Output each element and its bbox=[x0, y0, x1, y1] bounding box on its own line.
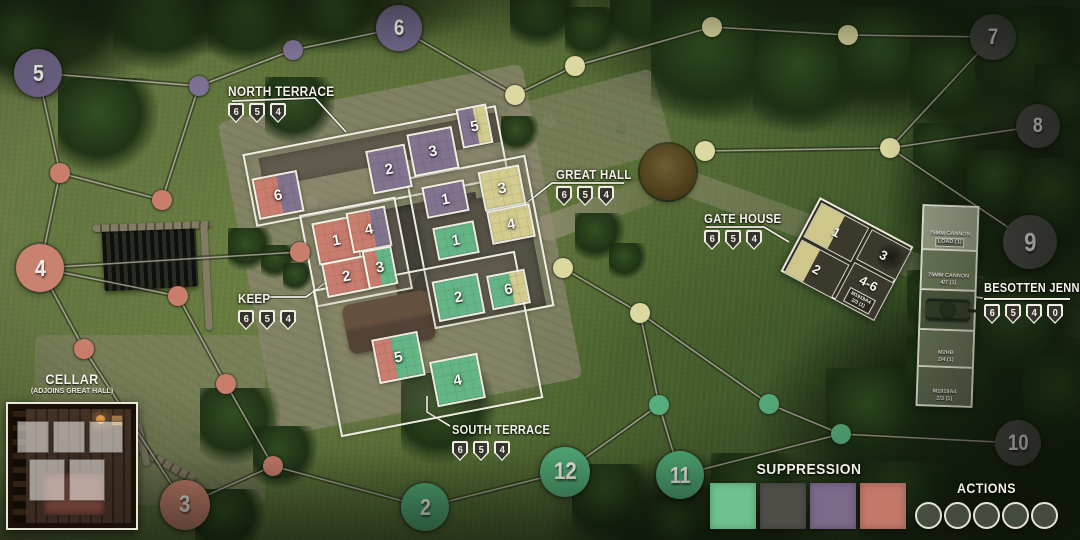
defense-badge: 5 bbox=[1005, 304, 1021, 324]
cellar-label: CELLAR (ADJOINS GREAT HALL) bbox=[2, 371, 142, 395]
badge-number: 4 bbox=[282, 312, 293, 326]
suppression-title: SUPPRESSION bbox=[718, 461, 900, 478]
badge-face: 4 bbox=[282, 312, 294, 328]
cellar-title: CELLAR bbox=[9, 371, 135, 387]
badge-number: 4 bbox=[1028, 306, 1039, 320]
great-hall-name: GREAT HALL bbox=[556, 167, 632, 182]
besotten-jenny-defense-badges: 6540 bbox=[984, 304, 1080, 324]
badge-face: 4 bbox=[748, 232, 760, 248]
gate-house-defense-badges: 654 bbox=[704, 230, 792, 250]
cellar-space[interactable] bbox=[17, 421, 49, 453]
action-slot[interactable] bbox=[944, 502, 971, 529]
badge-face: 6 bbox=[558, 188, 570, 204]
suppression-track: SUPPRESSION bbox=[710, 461, 908, 529]
actions-slots bbox=[915, 502, 1058, 529]
label-besotten-jenny: BESOTTEN JENNY6540 bbox=[984, 281, 1080, 324]
action-slot[interactable] bbox=[973, 502, 1000, 529]
south-terrace-defense-badges: 654 bbox=[452, 441, 564, 461]
defense-badge: 5 bbox=[249, 103, 265, 123]
north-terrace-name: NORTH TERRACE bbox=[228, 84, 334, 99]
cellar-space[interactable] bbox=[69, 459, 105, 501]
keep-defense-badges: 654 bbox=[238, 310, 296, 330]
actions-title: ACTIONS bbox=[921, 481, 1053, 496]
defense-badge: 6 bbox=[452, 441, 468, 461]
defense-badge: 4 bbox=[280, 310, 296, 330]
defense-badge: 6 bbox=[556, 186, 572, 206]
action-slot[interactable] bbox=[1031, 502, 1058, 529]
badge-face: 6 bbox=[240, 312, 252, 328]
defense-badge: 6 bbox=[228, 103, 244, 123]
badge-face: 4 bbox=[600, 188, 612, 204]
defense-badge: 6 bbox=[704, 230, 720, 250]
defense-badge: 4 bbox=[746, 230, 762, 250]
label-gate-house: GATE HOUSE654 bbox=[704, 211, 792, 250]
badge-number: 0 bbox=[1049, 306, 1060, 320]
label-north-terrace: NORTH TERRACE654 bbox=[228, 84, 349, 123]
defense-badge: 6 bbox=[238, 310, 254, 330]
defense-badge: 5 bbox=[725, 230, 741, 250]
badge-number: 5 bbox=[579, 188, 590, 202]
badge-face: 5 bbox=[727, 232, 739, 248]
badge-face: 6 bbox=[706, 232, 718, 248]
badge-face: 5 bbox=[579, 188, 591, 204]
great-hall-defense-badges: 654 bbox=[556, 186, 642, 206]
defense-badge: 4 bbox=[270, 103, 286, 123]
defense-badge: 4 bbox=[494, 441, 510, 461]
badge-number: 5 bbox=[261, 312, 272, 326]
badge-number: 6 bbox=[558, 188, 569, 202]
suppression-squares bbox=[710, 483, 908, 529]
badge-face: 5 bbox=[251, 105, 263, 121]
cellar-inset bbox=[6, 402, 138, 530]
badge-number: 5 bbox=[475, 443, 486, 457]
cellar-room bbox=[13, 409, 131, 523]
badge-number: 6 bbox=[230, 105, 241, 119]
cellar-subtitle: (ADJOINS GREAT HALL) bbox=[2, 388, 142, 395]
defense-badge: 4 bbox=[1026, 304, 1042, 324]
badge-number: 6 bbox=[706, 232, 717, 246]
action-slot[interactable] bbox=[1002, 502, 1029, 529]
label-great-hall: GREAT HALL654 bbox=[556, 167, 642, 206]
badge-face: 5 bbox=[261, 312, 273, 328]
badge-face: 6 bbox=[454, 443, 466, 459]
defense-badge: 5 bbox=[577, 186, 593, 206]
suppression-space[interactable] bbox=[760, 483, 806, 529]
badge-number: 6 bbox=[454, 443, 465, 457]
badge-number: 6 bbox=[240, 312, 251, 326]
south-terrace-name: SOUTH TERRACE bbox=[452, 423, 550, 437]
suppression-space[interactable] bbox=[860, 483, 906, 529]
north-terrace-defense-badges: 654 bbox=[228, 103, 349, 123]
badge-face: 5 bbox=[475, 443, 487, 459]
badge-face: 4 bbox=[496, 443, 508, 459]
badge-face: 5 bbox=[1007, 306, 1019, 322]
badge-number: 5 bbox=[251, 105, 262, 119]
keep-name: KEEP bbox=[238, 291, 289, 306]
gate-house-name: GATE HOUSE bbox=[704, 211, 781, 226]
defense-badge: 0 bbox=[1047, 304, 1063, 324]
defense-badge: 5 bbox=[473, 441, 489, 461]
defense-badge: 6 bbox=[984, 304, 1000, 324]
badge-face: 4 bbox=[1028, 306, 1040, 322]
game-board: 6235142311342654 1234-6M1919A42/3 (1)75M… bbox=[0, 0, 1080, 540]
badge-number: 4 bbox=[600, 188, 611, 202]
cellar-space[interactable] bbox=[89, 421, 123, 453]
badge-face: 6 bbox=[230, 105, 242, 121]
defense-badge: 5 bbox=[259, 310, 275, 330]
badge-number: 4 bbox=[496, 443, 507, 457]
labels-layer: NORTH TERRACE654GREAT HALL654GATE HOUSE6… bbox=[0, 0, 1080, 540]
label-keep: KEEP654 bbox=[238, 291, 296, 330]
suppression-space[interactable] bbox=[810, 483, 856, 529]
badge-number: 5 bbox=[1007, 306, 1018, 320]
badge-number: 5 bbox=[727, 232, 738, 246]
suppression-space[interactable] bbox=[710, 483, 756, 529]
badge-number: 4 bbox=[748, 232, 759, 246]
badge-number: 6 bbox=[986, 306, 997, 320]
badge-number: 4 bbox=[272, 105, 283, 119]
actions-track: ACTIONS bbox=[915, 481, 1058, 529]
defense-badge: 4 bbox=[598, 186, 614, 206]
badge-face: 6 bbox=[986, 306, 998, 322]
action-slot[interactable] bbox=[915, 502, 942, 529]
besotten-jenny-underline bbox=[984, 298, 1070, 300]
besotten-jenny-name: BESOTTEN JENNY bbox=[984, 281, 1080, 295]
badge-face: 0 bbox=[1049, 306, 1061, 322]
cellar-space[interactable] bbox=[53, 421, 85, 453]
cellar-space[interactable] bbox=[29, 459, 65, 501]
badge-face: 4 bbox=[272, 105, 284, 121]
label-south-terrace: SOUTH TERRACE654 bbox=[452, 423, 564, 461]
